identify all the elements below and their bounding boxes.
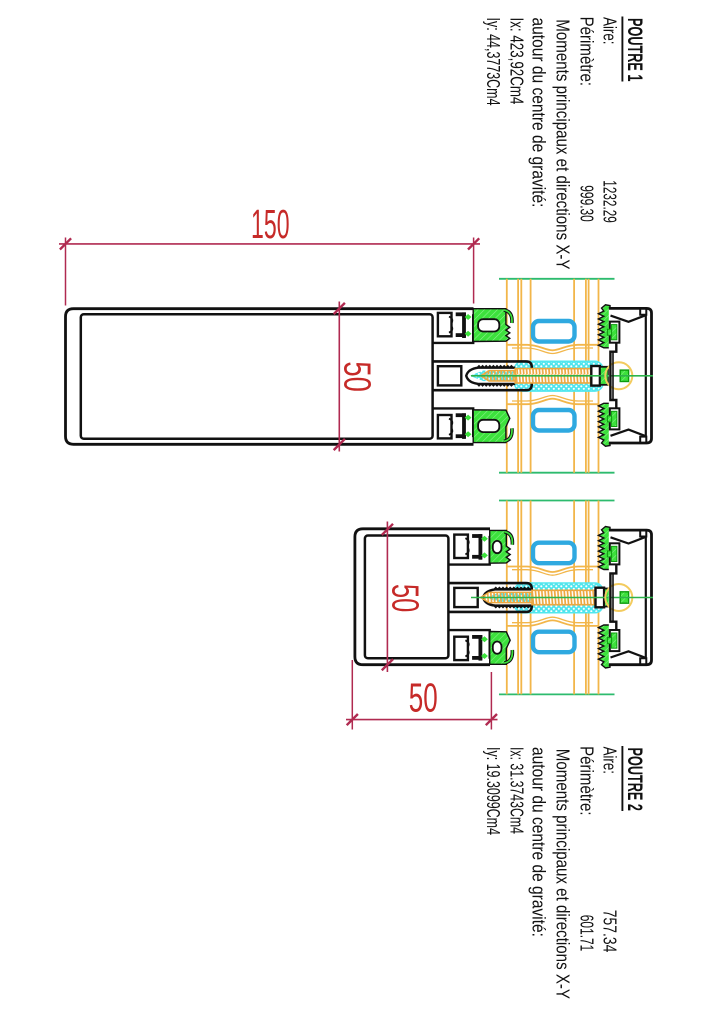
- svg-text:Moments principaux et directio: Moments principaux et directions X-Y: [553, 749, 574, 999]
- svg-text:autour du centre de gravité:: autour du centre de gravité:: [529, 747, 550, 937]
- svg-text:50: 50: [409, 675, 438, 721]
- svg-text:601.71: 601.71: [576, 915, 597, 952]
- svg-text:1232.29: 1232.29: [599, 180, 620, 223]
- svg-text:Iy: 44,3773Cm4: Iy: 44,3773Cm4: [483, 18, 504, 106]
- svg-text:Périmètre:: Périmètre:: [576, 17, 597, 87]
- svg-text:POUTRE 1: POUTRE 1: [623, 18, 646, 82]
- svg-text:50: 50: [383, 584, 425, 612]
- svg-text:Périmètre:: Périmètre:: [576, 746, 597, 816]
- svg-text:autour du centre de gravité:: autour du centre de gravité:: [529, 18, 550, 208]
- svg-text:Ix: 31.3743Cm4: Ix: 31.3743Cm4: [507, 747, 528, 834]
- svg-text:150: 150: [251, 201, 290, 247]
- svg-text:50: 50: [335, 361, 377, 392]
- svg-text:Aire:: Aire:: [599, 747, 620, 774]
- svg-text:Iy: 19.3099Cm4: Iy: 19.3099Cm4: [483, 747, 504, 835]
- svg-text:757.34: 757.34: [599, 910, 620, 953]
- svg-text:999.30: 999.30: [576, 185, 597, 222]
- svg-text:POUTRE 2: POUTRE 2: [623, 748, 646, 812]
- svg-text:Ix: 423,92Cm4: Ix: 423,92Cm4: [507, 18, 528, 105]
- svg-text:Moments principaux et directio: Moments principaux et directions X-Y: [553, 19, 574, 269]
- svg-text:Aire:: Aire:: [599, 17, 620, 44]
